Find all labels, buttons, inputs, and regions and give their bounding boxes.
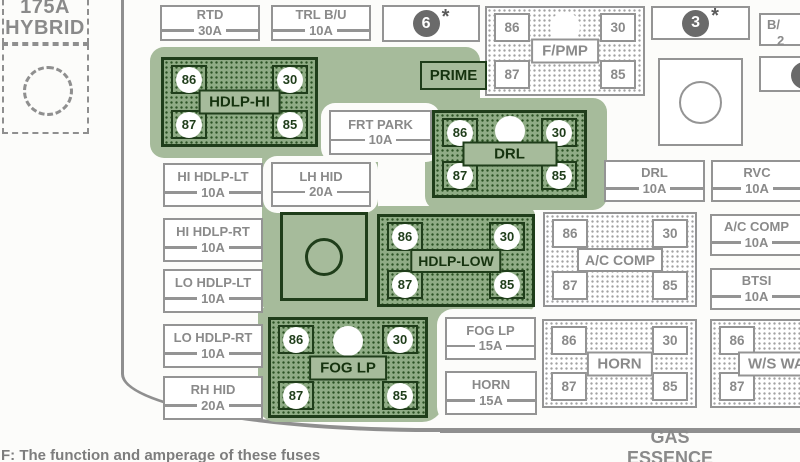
- socket-circle-icon: [305, 238, 343, 276]
- relay-pin-86: 86: [278, 325, 314, 354]
- relay-pin-87: 87: [494, 60, 530, 89]
- fuse-hi-hdlp-lt: HI HDLP-LT 10A: [163, 163, 263, 207]
- relay-label: FOG LP: [309, 355, 387, 380]
- asterisk-icon: *: [442, 7, 450, 27]
- relay-pin-30: 30: [600, 13, 636, 42]
- relay-pin-87: 87: [719, 372, 755, 401]
- prime-label: PRIME: [420, 61, 487, 90]
- partial-marker-box: [759, 56, 800, 92]
- relay-pin-87: 87: [551, 372, 587, 401]
- relay-ws-wa: 86 87 W/S WA: [710, 319, 800, 408]
- marker-6-box: 6 *: [382, 5, 480, 42]
- fuse-hi-hdlp-rt: HI HDLP-RT 10A: [163, 218, 263, 262]
- relay-label: HORN: [586, 351, 652, 376]
- fuse-lh-hid: LH HID 20A: [271, 162, 371, 207]
- partial-fuse-box: B/ 2: [759, 13, 800, 46]
- relay-drl: 86 30 87 85 DRL: [432, 110, 587, 198]
- hybrid-terminal-circle-icon: [23, 66, 73, 116]
- circled-number-icon: 6: [413, 10, 440, 37]
- fuse-fog-lp: FOG LP 15A: [445, 317, 536, 360]
- fuse-drl: DRL 10A: [604, 160, 705, 202]
- fuse-box-diagram: 175A HYBRID RTD 30A TRL B/U 10A 6 * 3 * …: [0, 0, 800, 462]
- relay-pin-85: 85: [382, 381, 418, 410]
- component-socket-square: [658, 58, 743, 146]
- asterisk-icon: *: [711, 6, 719, 26]
- relay-label: F/PMP: [531, 39, 599, 64]
- marker-3-box: 3 *: [651, 6, 750, 40]
- relay-pin-85: 85: [652, 372, 688, 401]
- relay-horn: 86 30 87 85 HORN: [542, 319, 697, 408]
- relay-pin-86: 86: [551, 326, 587, 355]
- relay-pin-87: 87: [278, 381, 314, 410]
- fuse-btsi: BTSI 10A: [710, 268, 800, 310]
- relay-pin-87: 87: [552, 271, 588, 300]
- circled-number-icon: 3: [682, 10, 709, 37]
- relay-ac-comp: 86 30 87 85 A/C COMP: [543, 212, 697, 307]
- circled-number-icon: [791, 62, 800, 89]
- fuse-lo-hdlp-lt: LO HDLP-LT 10A: [163, 269, 263, 313]
- relay-f-pmp: 86 30 87 85 F/PMP: [485, 6, 645, 96]
- fuel-type-label: GAS ESSENCE: [590, 427, 750, 462]
- fuse-ac-comp: A/C COMP 10A: [710, 214, 800, 256]
- fuse-frt-park: FRT PARK 10A: [329, 110, 432, 155]
- fuse-trl-bu: TRL B/U 10A: [271, 5, 371, 41]
- relay-pin-86: 86: [494, 13, 530, 42]
- relay-pin-30: 30: [652, 219, 688, 248]
- relay-label: W/S WA: [738, 351, 800, 376]
- relay-fog-lp: 86 30 87 85 FOG LP: [268, 317, 428, 418]
- fuse-rtd: RTD 30A: [160, 5, 260, 41]
- relay-pin-30: 30: [489, 222, 525, 251]
- footnote-text: F: The function and amperage of these fu…: [1, 447, 320, 462]
- relay-mount-hole-icon: [550, 12, 580, 42]
- relay-pin-30: 30: [382, 325, 418, 354]
- fuse-rvc: RVC 10A: [711, 160, 800, 202]
- relay-hdlp-hi: 86 30 87 85 HDLP-HI: [161, 57, 318, 147]
- relay-socket-square: [280, 212, 368, 301]
- relay-pin-85: 85: [600, 60, 636, 89]
- relay-pin-85: 85: [489, 270, 525, 299]
- fuse-rh-hid: RH HID 20A: [163, 376, 263, 420]
- relay-label: A/C COMP: [577, 248, 663, 272]
- relay-label: HDLP-HI: [198, 90, 281, 115]
- relay-pin-30: 30: [652, 326, 688, 355]
- relay-hdlp-low: 86 30 87 85 HDLP-LOW: [377, 214, 535, 307]
- fuse-lo-hdlp-rt: LO HDLP-RT 10A: [163, 324, 263, 368]
- relay-pin-86: 86: [552, 219, 588, 248]
- relay-label: DRL: [462, 142, 557, 167]
- relay-pin-85: 85: [652, 271, 688, 300]
- relay-pin-86: 86: [387, 222, 423, 251]
- relay-mount-hole-icon: [333, 326, 363, 356]
- fuse-horn: HORN 15A: [445, 371, 537, 415]
- socket-circle-icon: [679, 81, 722, 124]
- relay-label: HDLP-LOW: [410, 249, 501, 273]
- hybrid-label: HYBRID: [1, 17, 89, 40]
- relay-pin-87: 87: [387, 270, 423, 299]
